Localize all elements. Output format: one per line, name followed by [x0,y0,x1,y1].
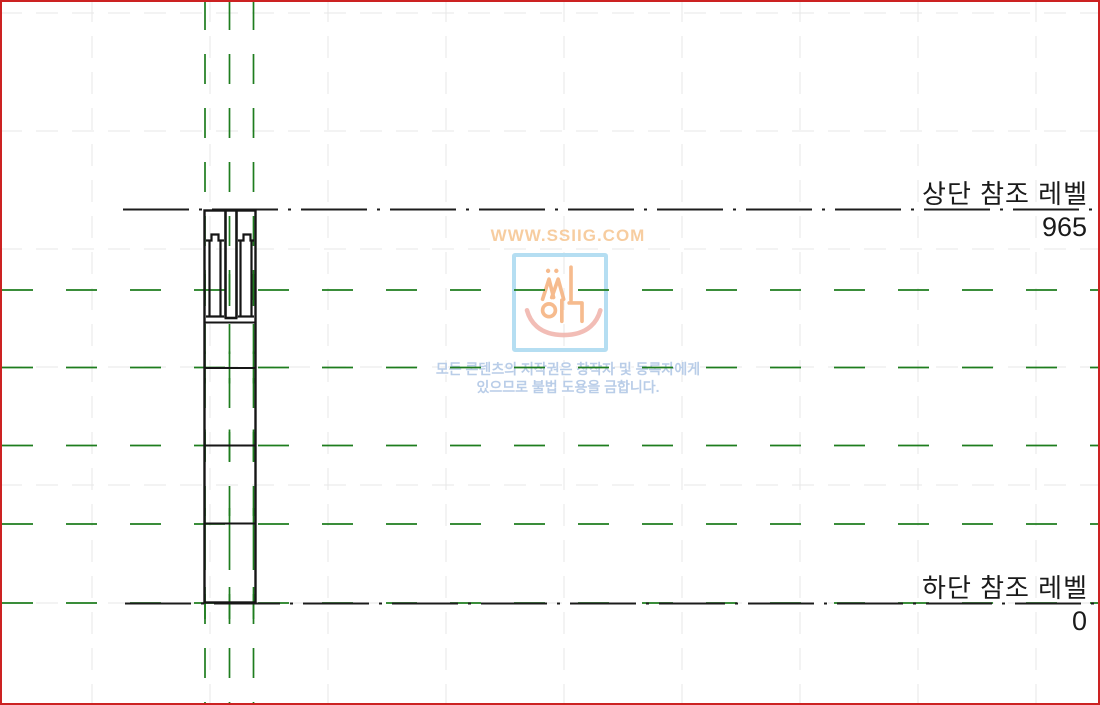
column-center-channel [225,211,238,318]
lower-level-value[interactable]: 0 [887,606,1087,637]
lower-level-label[interactable]: 하단 참조 레벨 [688,568,1088,605]
column-sleeve-right [238,235,254,317]
upper-level-value[interactable]: 965 [887,212,1087,243]
drawing-canvas: WWW.SSIIG.COM 모든 콘텐츠의 저작권은 창작자 및 등록자에게 있… [0,0,1100,705]
column-sleeve-left [206,235,224,317]
level-lines[interactable] [123,210,1094,604]
upper-level-label[interactable]: 상단 참조 레벨 [688,174,1088,211]
